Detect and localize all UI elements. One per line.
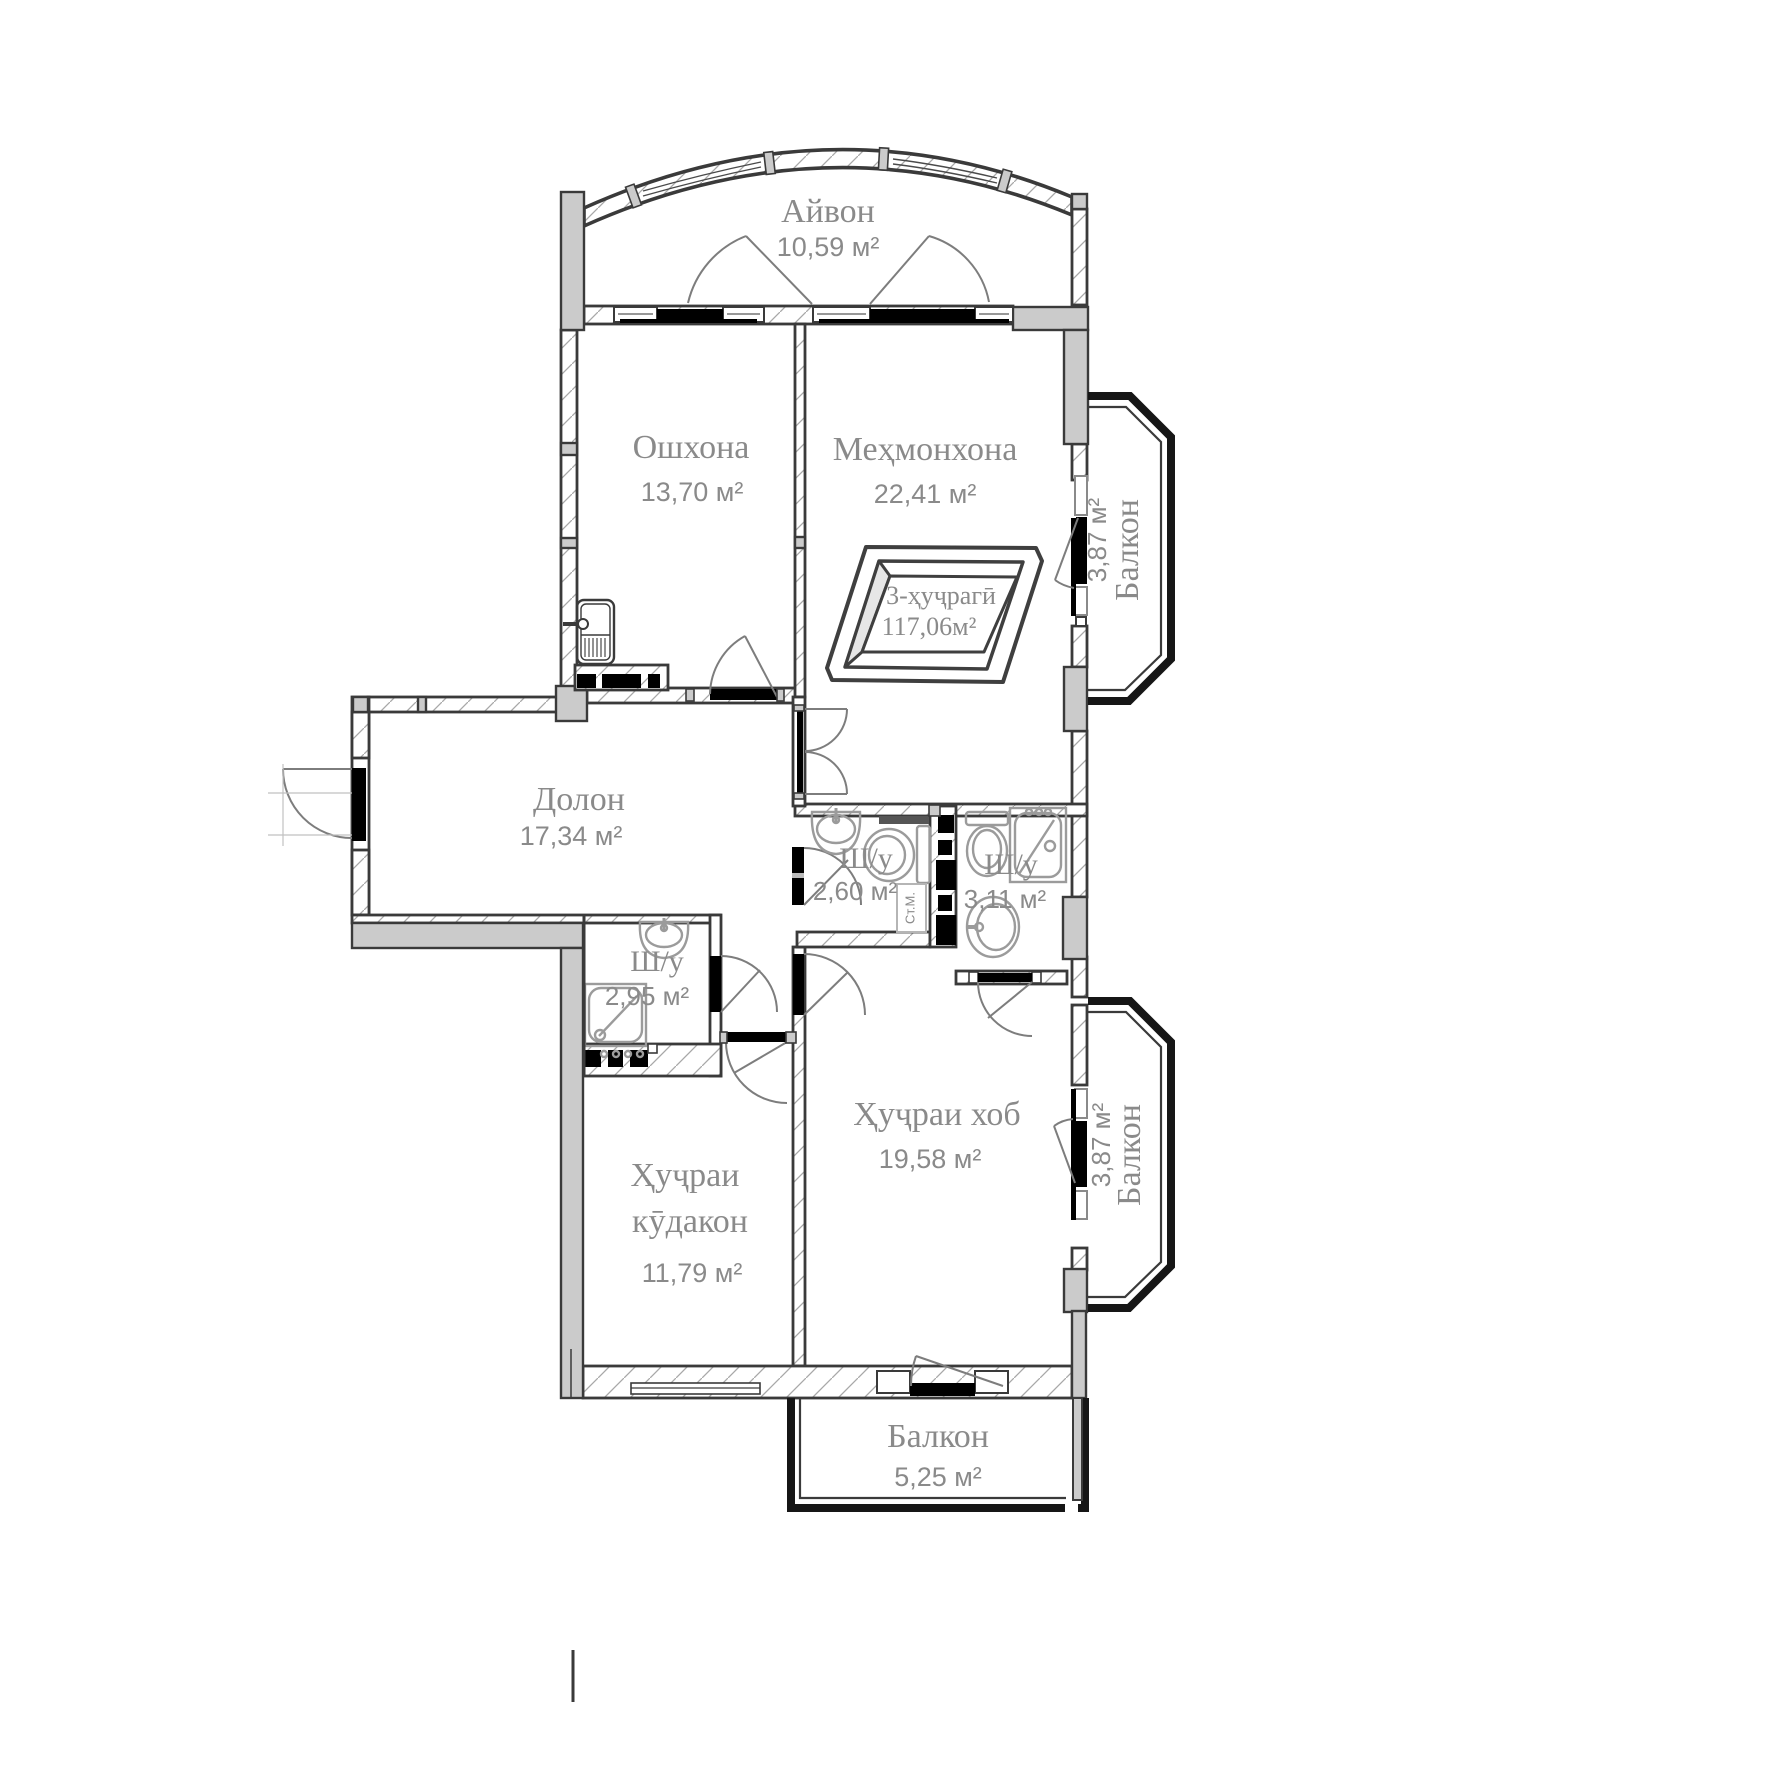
svg-text:Балкон: Балкон	[1111, 1104, 1148, 1206]
svg-text:Ст.М.: Ст.М.	[902, 892, 917, 924]
svg-text:Балкон: Балкон	[887, 1418, 989, 1455]
svg-text:Ошхона: Ошхона	[633, 429, 750, 466]
svg-text:Ш/у: Ш/у	[984, 848, 1038, 881]
svg-text:Айвон: Айвон	[781, 193, 875, 230]
svg-text:3-ҳуҷрагӣ: 3-ҳуҷрагӣ	[886, 581, 996, 610]
svg-text:Балкон: Балкон	[1109, 499, 1146, 601]
svg-text:Ҳуҷраи: Ҳуҷраи	[631, 1157, 740, 1194]
svg-text:10,59 м²: 10,59 м²	[777, 232, 880, 262]
svg-text:11,79 м²: 11,79 м²	[642, 1258, 743, 1288]
svg-text:17,34 м²: 17,34 м²	[520, 821, 623, 851]
svg-text:Меҳмонхона: Меҳмонхона	[833, 431, 1018, 468]
svg-text:22,41 м²: 22,41 м²	[874, 479, 977, 509]
svg-text:Ҳуҷраи хоб: Ҳуҷраи хоб	[853, 1096, 1020, 1133]
svg-text:Ш/у: Ш/у	[630, 945, 684, 978]
svg-text:3,87 м²: 3,87 м²	[1086, 1102, 1116, 1187]
svg-text:5,25 м²: 5,25 м²	[894, 1462, 982, 1492]
svg-text:кӯдакон: кӯдакон	[632, 1203, 748, 1240]
svg-text:Ш/у: Ш/у	[839, 842, 893, 875]
svg-text:2,60 м²: 2,60 м²	[813, 876, 898, 906]
svg-text:117,06м²: 117,06м²	[882, 612, 977, 641]
svg-text:19,58 м²: 19,58 м²	[879, 1144, 982, 1174]
svg-text:2,95 м²: 2,95 м²	[605, 981, 690, 1011]
svg-text:Долон: Долон	[533, 781, 625, 818]
svg-text:3,87 м²: 3,87 м²	[1082, 497, 1112, 582]
svg-text:13,70 м²: 13,70 м²	[641, 477, 744, 507]
svg-text:3,11 м²: 3,11 м²	[964, 884, 1047, 914]
